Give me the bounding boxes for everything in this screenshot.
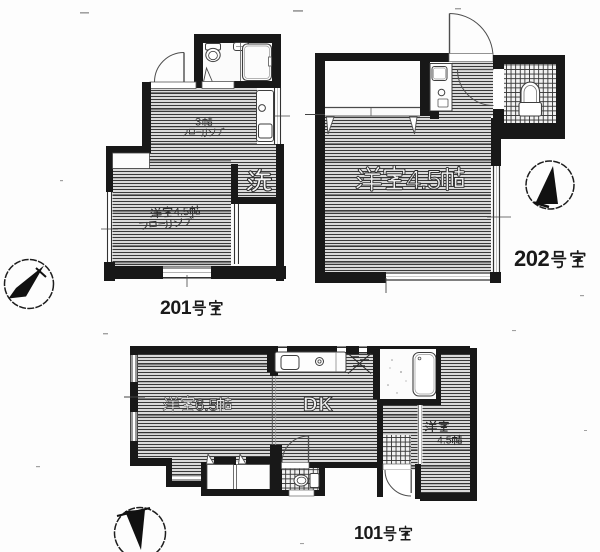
svg-text:4.5: 4.5 <box>437 435 452 447</box>
svg-text:4.5: 4.5 <box>406 165 441 195</box>
svg-text:4.5: 4.5 <box>173 206 189 219</box>
svg-text:DK: DK <box>303 394 334 416</box>
svg-text:6.5: 6.5 <box>195 397 218 415</box>
svg-text:3: 3 <box>195 117 201 129</box>
svg-text:201: 201 <box>160 297 192 319</box>
svg-text:101: 101 <box>354 523 383 543</box>
svg-text:202: 202 <box>514 246 549 271</box>
